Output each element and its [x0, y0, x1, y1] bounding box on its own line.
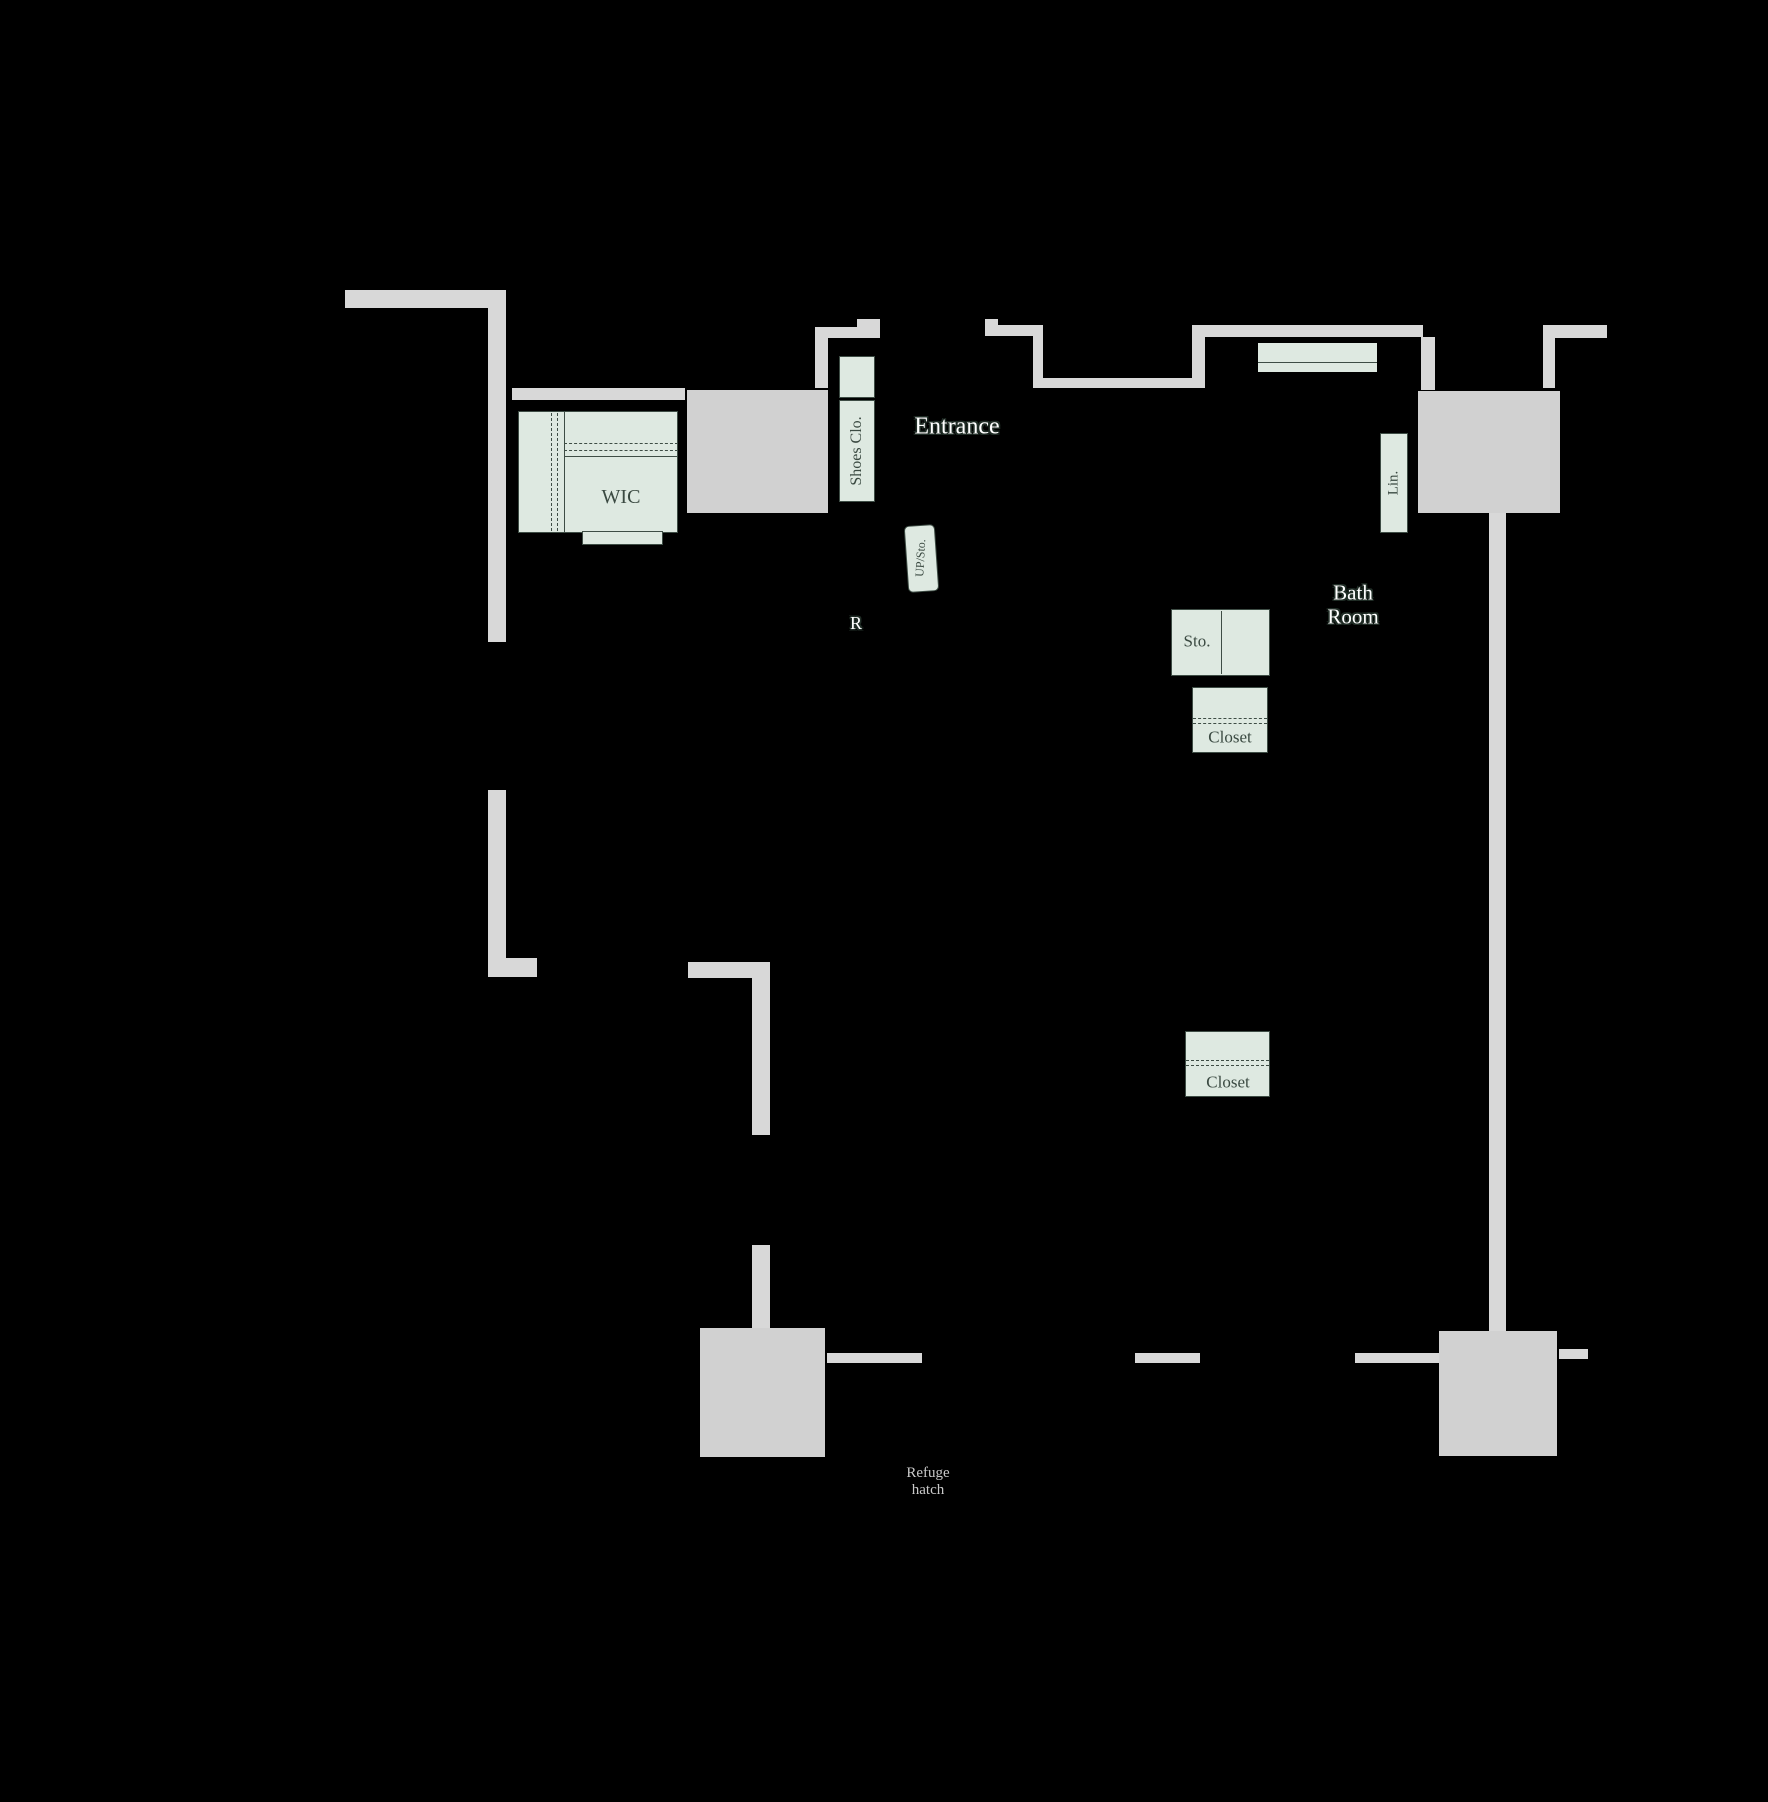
- wall-entrance-left-jamb: [857, 319, 880, 327]
- refuge-hatch-label: Refugehatch: [906, 1465, 949, 1499]
- bath-room-label-line: Bath: [1327, 581, 1378, 605]
- wic-hanger-dash-2: [557, 413, 558, 531]
- wall-top-center-v: [1421, 337, 1435, 390]
- wall-entrance-left-h: [815, 327, 880, 338]
- closet-1-dash-1: [1193, 718, 1267, 719]
- wall-left-upper: [488, 290, 506, 642]
- closet-2-label-line: Closet: [1206, 1072, 1249, 1091]
- pillar-bottom-right: [1439, 1331, 1557, 1456]
- wic-partition-v: [564, 411, 565, 533]
- bath-room-label: BathRoom: [1327, 581, 1378, 628]
- wall-top-left-h: [345, 290, 506, 308]
- closet-2-dash-2: [1186, 1065, 1269, 1066]
- r-mark-label: R: [850, 613, 862, 633]
- closet-1-label-line: Closet: [1208, 727, 1251, 746]
- wall-top-right-h: [1543, 325, 1607, 338]
- entrance-label: Entrance: [914, 414, 999, 441]
- refuge-hatch-label-line: Refuge: [906, 1465, 949, 1482]
- shoes-closet-upper: [839, 356, 875, 398]
- wall-entrance-right-jamb: [985, 319, 998, 327]
- wic-label: WIC: [602, 486, 641, 508]
- floor-plan-canvas: EntranceBathRoomRWICShoes Clo.Lin.Sto.Cl…: [0, 0, 1768, 1802]
- closet-1-label: Closet: [1208, 727, 1251, 746]
- bath-room-label-line: Room: [1327, 605, 1378, 629]
- wall-left-foot: [488, 958, 537, 977]
- wall-entrance-left-v: [815, 338, 828, 388]
- closet-2-label: Closet: [1206, 1072, 1249, 1091]
- refuge-hatch-label-line: hatch: [906, 1482, 949, 1499]
- wall-right: [1489, 513, 1506, 1331]
- wic-shelf-solid: [564, 456, 678, 457]
- wic-shelf-dash-1: [564, 443, 678, 444]
- pillar-top-right: [1418, 391, 1560, 513]
- r-mark-label-line: R: [850, 613, 862, 633]
- wic-shelf-dash-2: [564, 450, 678, 451]
- wall-left-lower: [488, 790, 506, 962]
- wic-label-line: WIC: [602, 486, 641, 508]
- shoes-closet-label-line: Shoes Clo.: [848, 416, 866, 485]
- linen-label: Lin.: [1386, 471, 1403, 496]
- wall-niche-left-v: [1033, 336, 1043, 378]
- closet-1-dash-2: [1193, 723, 1267, 724]
- bath-deck-edge: [1258, 362, 1377, 363]
- closet-2-dash-1: [1186, 1060, 1269, 1061]
- wall-mid-left-v: [752, 978, 770, 1135]
- wall-mid-left-v2: [752, 1245, 770, 1328]
- wall-bottom-stub-1: [1135, 1353, 1200, 1363]
- entrance-label-line: Entrance: [914, 414, 999, 441]
- pillar-bottom-left: [700, 1328, 825, 1457]
- up-storage-label-line: UP/Sto.: [913, 539, 928, 577]
- wall-wic-top: [512, 388, 685, 400]
- linen-label-line: Lin.: [1386, 471, 1403, 496]
- wall-bottom-stub-2: [1355, 1353, 1439, 1363]
- wic-room: [518, 411, 678, 533]
- storage-divider: [1221, 611, 1222, 674]
- wall-top-center-h: [1193, 325, 1423, 337]
- wall-niche-bottom: [1033, 378, 1192, 388]
- wall-bottom-stub-3: [1559, 1349, 1588, 1359]
- wic-hanger-dash-1: [551, 413, 552, 531]
- wall-mid-left-h: [688, 962, 770, 978]
- storage-label: Sto.: [1184, 631, 1211, 650]
- storage-label-line: Sto.: [1184, 631, 1211, 650]
- up-storage-label: UP/Sto.: [913, 539, 928, 577]
- wic-tab: [582, 531, 663, 545]
- bath-deck: [1258, 343, 1377, 372]
- shoes-closet-label: Shoes Clo.: [848, 416, 866, 485]
- pillar-elevator: [687, 390, 828, 513]
- wall-bottom-left-bar: [827, 1353, 922, 1363]
